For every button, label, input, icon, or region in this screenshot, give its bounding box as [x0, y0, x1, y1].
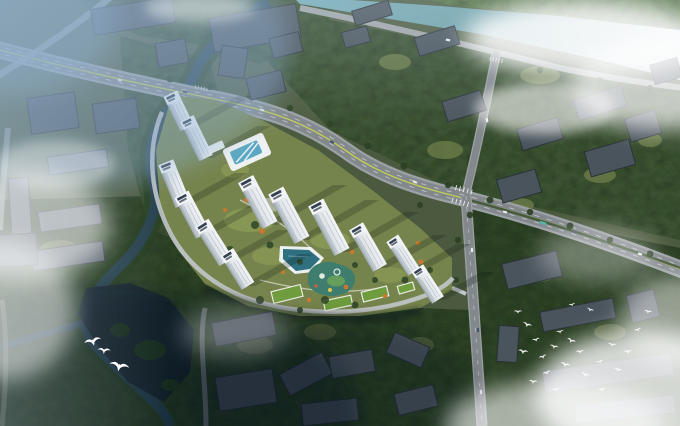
- cloud: [0, 140, 115, 190]
- playground-pad: [314, 284, 318, 288]
- tree: [365, 143, 372, 150]
- shrub: [251, 221, 259, 229]
- tree: [455, 237, 461, 243]
- autumn-tree: [259, 228, 265, 234]
- tree: [507, 225, 513, 231]
- shrub: [402, 277, 409, 284]
- cloud: [475, 82, 615, 134]
- grass-patch: [427, 141, 463, 159]
- tree: [417, 202, 423, 208]
- tree: [445, 182, 451, 188]
- shrub: [321, 296, 329, 304]
- tree: [485, 227, 491, 233]
- shrub: [352, 302, 359, 309]
- scene-canvas: [0, 0, 680, 426]
- tree: [467, 212, 473, 218]
- car: [477, 328, 480, 333]
- tree: [527, 209, 533, 215]
- tree: [400, 162, 407, 169]
- tree: [487, 197, 494, 204]
- autumn-tree: [383, 294, 387, 298]
- aerial-rendering: [0, 0, 680, 426]
- tree: [492, 307, 498, 313]
- tree: [567, 223, 574, 230]
- playground-pad: [344, 285, 349, 290]
- tree: [456, 317, 462, 323]
- lawn: [374, 267, 406, 283]
- cloud: [538, 227, 658, 283]
- autumn-tree: [307, 298, 311, 302]
- autumn-tree: [223, 208, 227, 212]
- playground-mound: [327, 276, 345, 287]
- cloud: [180, 307, 290, 357]
- building-slab: [497, 325, 519, 362]
- playground-pad: [319, 273, 325, 279]
- car: [471, 248, 473, 253]
- shrub: [352, 262, 358, 268]
- playground-pad: [328, 288, 332, 292]
- shrub: [372, 277, 378, 283]
